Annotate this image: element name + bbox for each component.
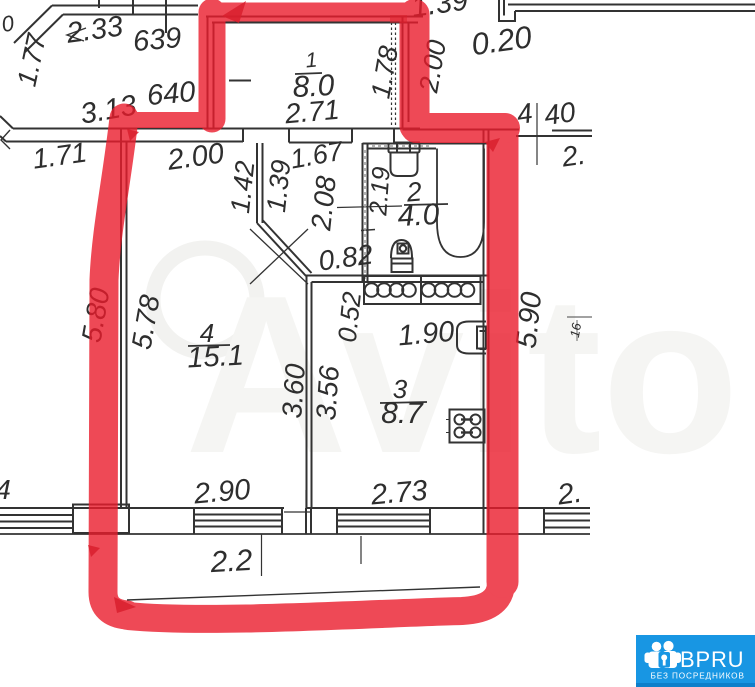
svg-text:2.73: 2.73	[369, 475, 429, 512]
svg-text:639: 639	[132, 22, 183, 58]
svg-text:4.0: 4.0	[397, 198, 441, 233]
svg-text:2.19: 2.19	[364, 166, 395, 218]
svg-text:2.: 2.	[555, 477, 584, 512]
svg-text:2.2: 2.2	[209, 544, 254, 579]
svg-text:1.42: 1.42	[225, 159, 260, 214]
svg-text:40: 40	[542, 96, 578, 131]
svg-text:4: 4	[0, 474, 11, 505]
svg-text:1.90: 1.90	[397, 316, 456, 353]
svg-text:BPRU: BPRU	[680, 647, 744, 672]
svg-text:2.90: 2.90	[192, 474, 252, 511]
svg-text:3.56: 3.56	[310, 364, 345, 421]
svg-text:640: 640	[146, 76, 197, 112]
svg-text:2.71: 2.71	[283, 94, 341, 130]
svg-text:15.1: 15.1	[187, 340, 245, 375]
svg-text:0.52: 0.52	[332, 290, 367, 344]
svg-text:3.60: 3.60	[276, 362, 311, 419]
svg-text:2.08: 2.08	[305, 174, 342, 233]
svg-text:БЕЗ ПОСРЕДНИКОВ: БЕЗ ПОСРЕДНИКОВ	[651, 672, 745, 681]
svg-text:8.7: 8.7	[381, 397, 424, 430]
svg-text:2.: 2.	[559, 139, 587, 173]
